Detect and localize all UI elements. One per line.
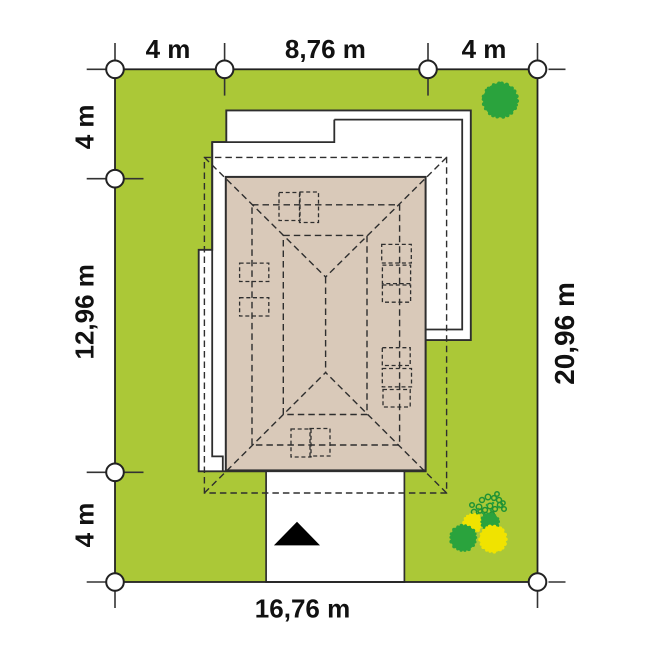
svg-text:4 m: 4 m: [70, 104, 100, 149]
svg-text:4 m: 4 m: [146, 34, 191, 64]
svg-text:20,96 m: 20,96 m: [549, 282, 580, 385]
svg-text:8,76 m: 8,76 m: [285, 34, 366, 64]
svg-text:4 m: 4 m: [70, 503, 100, 548]
svg-text:4 m: 4 m: [462, 34, 507, 64]
svg-text:16,76 m: 16,76 m: [255, 594, 350, 624]
svg-text:12,96 m: 12,96 m: [70, 264, 100, 359]
